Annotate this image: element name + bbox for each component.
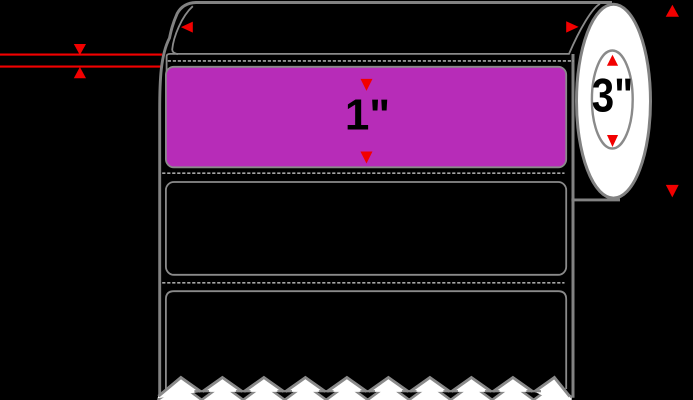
svg-text:3": 3" [592,69,634,122]
svg-text:1": 1" [345,90,390,139]
